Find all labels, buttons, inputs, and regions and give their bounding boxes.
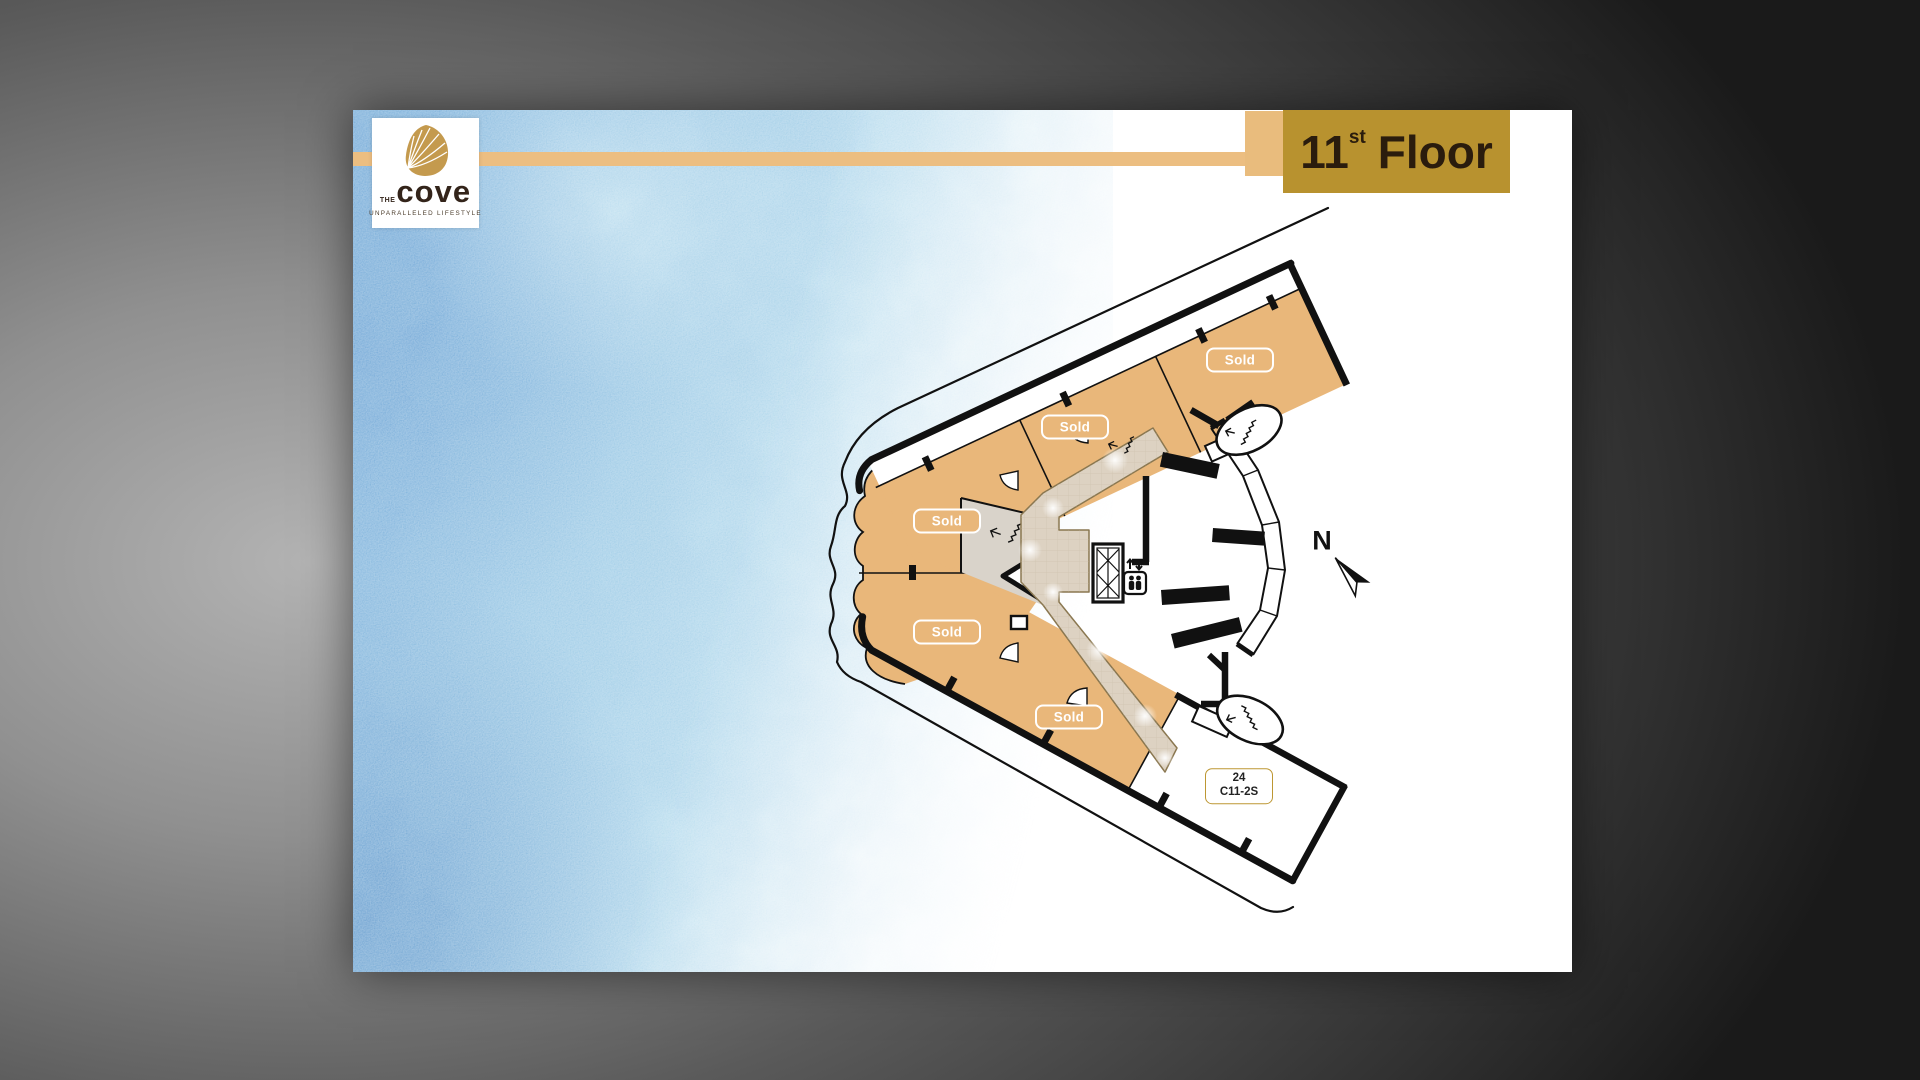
presentation-stage: 11st Floor THE cove UNPARALLELED L: [0, 0, 1920, 1080]
north-arrow-icon: [1328, 551, 1371, 596]
wall-stub: [909, 565, 916, 580]
north-label: N: [1312, 526, 1332, 557]
elevator-icon: [1093, 544, 1123, 602]
pillars: [1160, 452, 1265, 649]
sold-label: Sold: [1041, 415, 1109, 440]
sold-label: Sold: [913, 509, 981, 534]
sold-label: Sold: [1206, 348, 1274, 373]
unit-number: 24: [1208, 772, 1270, 786]
sold-label: Sold: [1035, 705, 1103, 730]
sold-label: Sold: [913, 620, 981, 645]
floor-plan-slide: 11st Floor THE cove UNPARALLELED L: [353, 110, 1572, 972]
unit-label[interactable]: 24 C11-2S: [1205, 768, 1273, 804]
unit-code: C11-2S: [1208, 786, 1270, 800]
floor-plan: [353, 110, 1572, 972]
